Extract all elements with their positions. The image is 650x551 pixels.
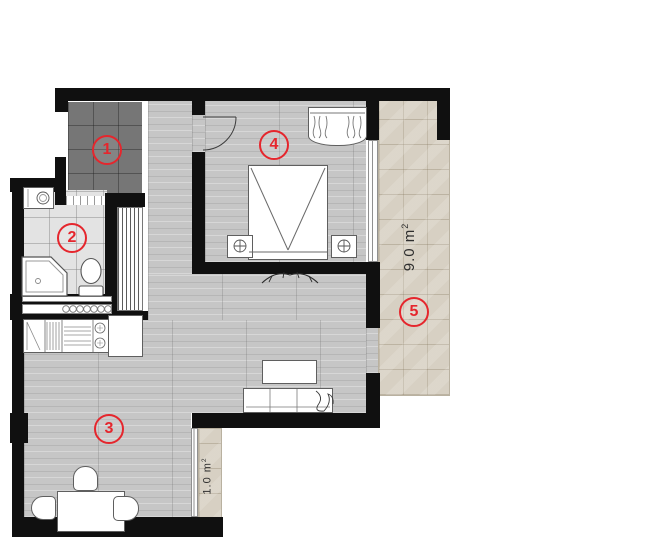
kitchen-details bbox=[27, 320, 105, 352]
room-marker-2-number: 2 bbox=[68, 229, 77, 247]
balcony-area-value: 9.0 m bbox=[401, 229, 418, 272]
detail-lines bbox=[0, 0, 650, 551]
room-marker-5-number: 5 bbox=[410, 303, 419, 321]
room-marker-4-number: 4 bbox=[270, 136, 279, 154]
room-marker-3-number: 3 bbox=[105, 420, 114, 438]
washing-machine-drum bbox=[28, 189, 49, 207]
toilet bbox=[79, 259, 103, 297]
small-balcony-area-label: 1.0 m2 bbox=[201, 436, 217, 516]
balcony-area-sup: 2 bbox=[400, 223, 410, 229]
small-balcony-area-sup: 2 bbox=[201, 457, 208, 462]
room-marker-5: 5 bbox=[399, 297, 429, 327]
room-marker-4: 4 bbox=[259, 130, 289, 160]
room-marker-1: 1 bbox=[92, 135, 122, 165]
bed-linens bbox=[249, 168, 327, 252]
bedroom-door-arc bbox=[203, 117, 236, 150]
small-balcony-area-value: 1.0 m bbox=[202, 462, 214, 495]
room-marker-2: 2 bbox=[57, 223, 87, 253]
sofa-cushions bbox=[246, 389, 333, 412]
radiator-sections bbox=[63, 306, 112, 313]
balcony-area-label: 9.0 m2 bbox=[400, 197, 420, 297]
shower bbox=[22, 257, 67, 296]
floor-plan: 1 2 3 4 5 9.0 m2 1.0 m2 bbox=[0, 0, 650, 551]
room-marker-1-number: 1 bbox=[103, 141, 112, 159]
room-marker-3: 3 bbox=[94, 414, 124, 444]
plant-garland bbox=[262, 272, 318, 283]
wardrobe-clothes bbox=[310, 113, 365, 138]
